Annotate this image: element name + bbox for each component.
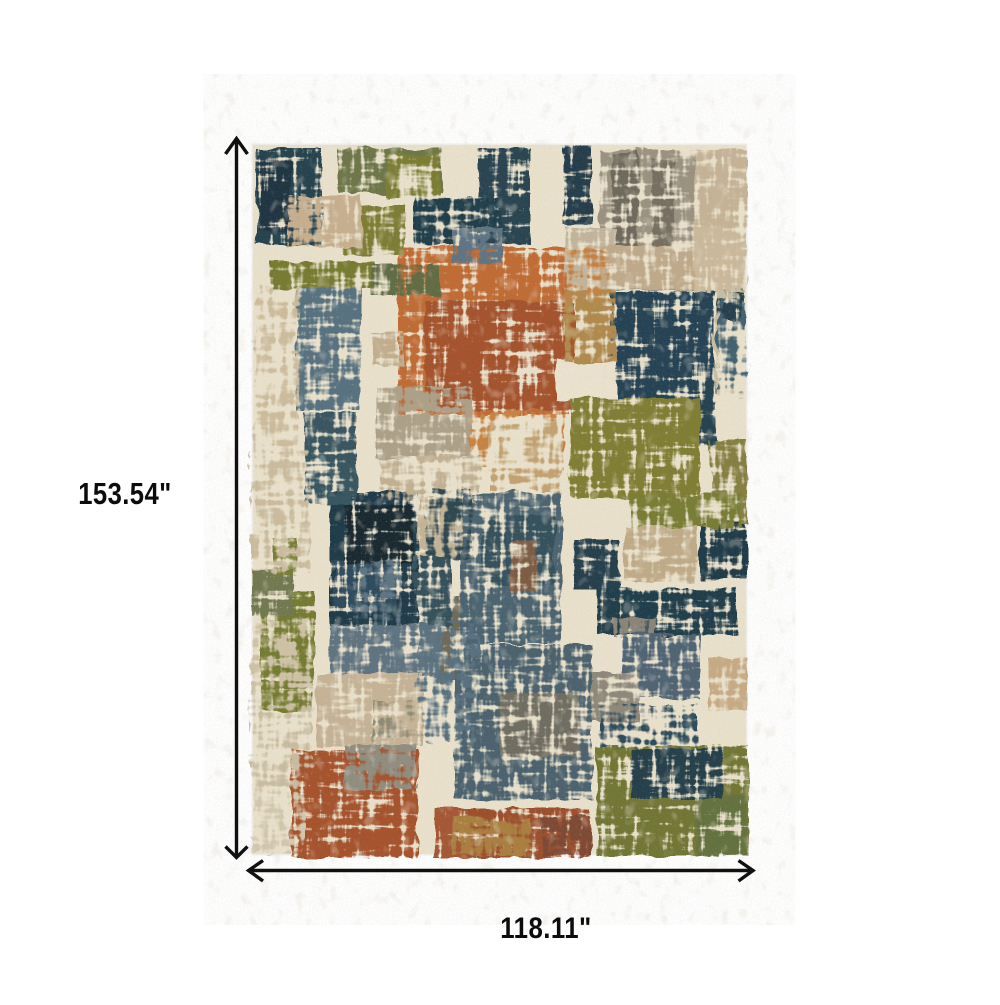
svg-text:118.11": 118.11" bbox=[500, 911, 591, 944]
svg-text:153.54": 153.54" bbox=[78, 477, 171, 511]
